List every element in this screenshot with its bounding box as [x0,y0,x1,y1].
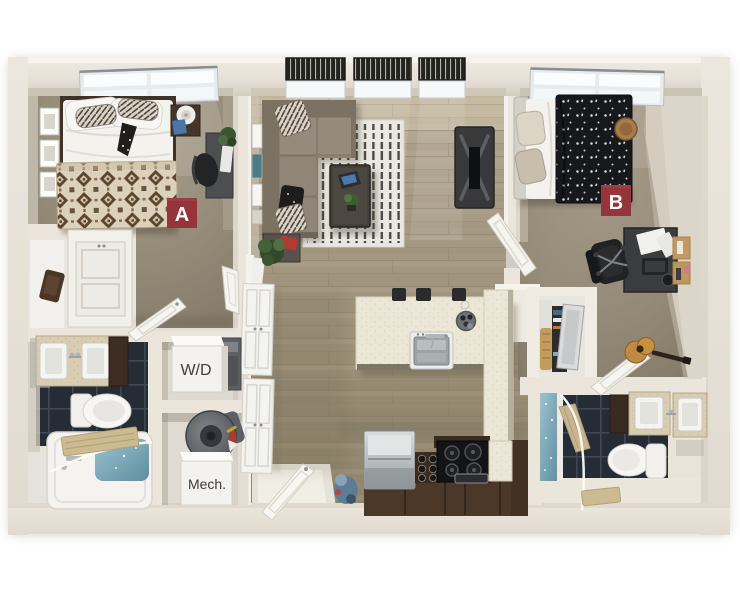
svg-text:A: A [175,204,189,226]
svg-text:Mech.: Mech. [188,476,226,492]
svg-text:B: B [609,192,623,214]
svg-text:W/D: W/D [180,362,211,379]
